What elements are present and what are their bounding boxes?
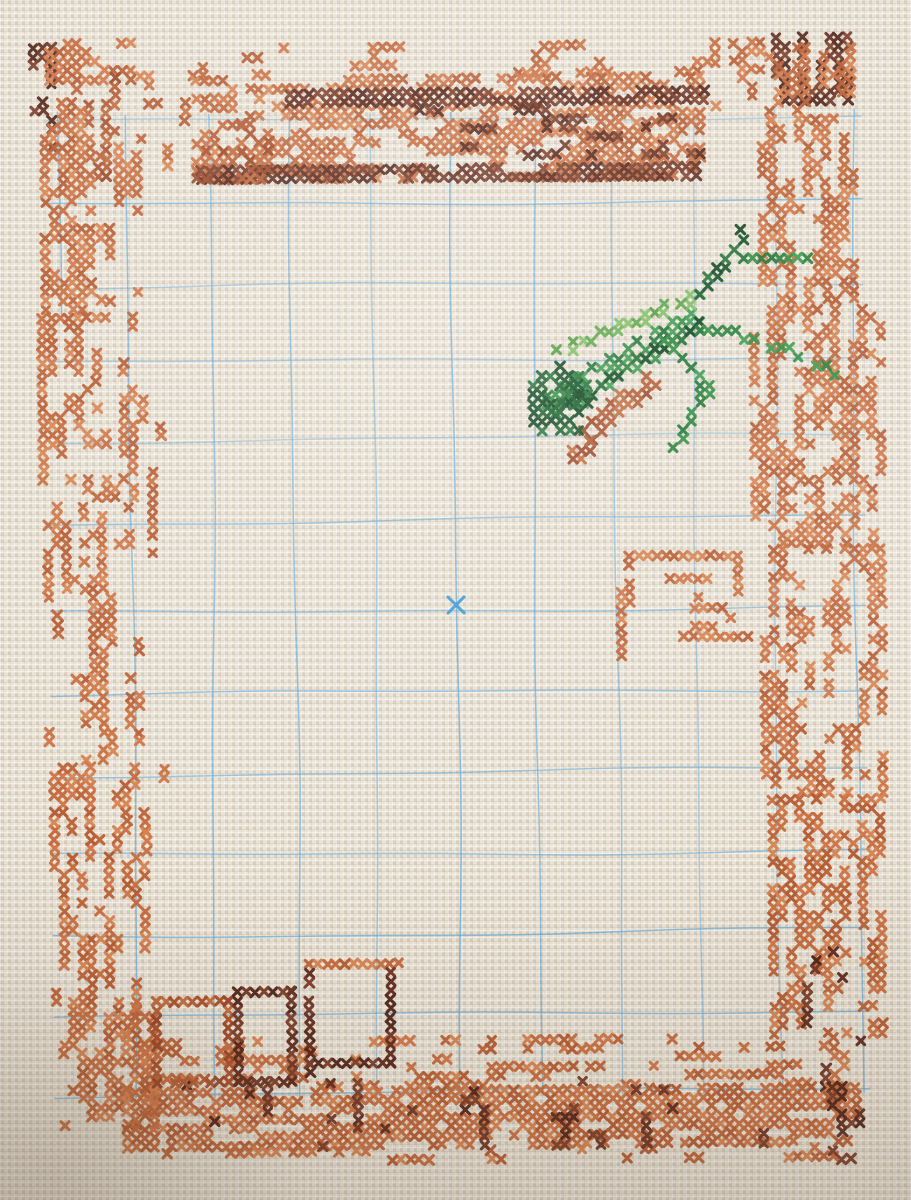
- border-left-1: [37, 313, 138, 502]
- tl-col-inner: [96, 143, 143, 306]
- mantis-tail: [568, 437, 595, 464]
- motif-right-stub: [734, 561, 742, 595]
- cross-stitch-photo: [0, 0, 911, 1200]
- border-right-1: [757, 115, 858, 305]
- motif-inner: [691, 603, 735, 631]
- motif-left-a: [625, 561, 634, 607]
- stitch-art: [0, 0, 911, 1200]
- motif-ticks: [666, 574, 711, 601]
- left-singles: [138, 396, 169, 855]
- window-c-right: [386, 968, 396, 1066]
- tl-corner: [45, 39, 135, 94]
- top-left-sparse: [137, 81, 190, 170]
- motif-bottom: [679, 631, 751, 641]
- tr-corner-orange: [765, 43, 855, 124]
- window-c-bottom: [305, 1058, 395, 1068]
- border-right-2: [749, 304, 886, 548]
- mantis-antenna-tip: [736, 225, 744, 233]
- mantis-antenna: [695, 236, 748, 299]
- border-right-4: [767, 794, 887, 1038]
- bottom-main: [122, 1082, 861, 1152]
- motif-left-b: [616, 588, 626, 659]
- border-right-dark: [802, 947, 865, 1091]
- border-right-3: [759, 544, 888, 798]
- tl-hook: [84, 74, 121, 181]
- border-left-2: [43, 502, 145, 764]
- motif-top: [625, 550, 741, 561]
